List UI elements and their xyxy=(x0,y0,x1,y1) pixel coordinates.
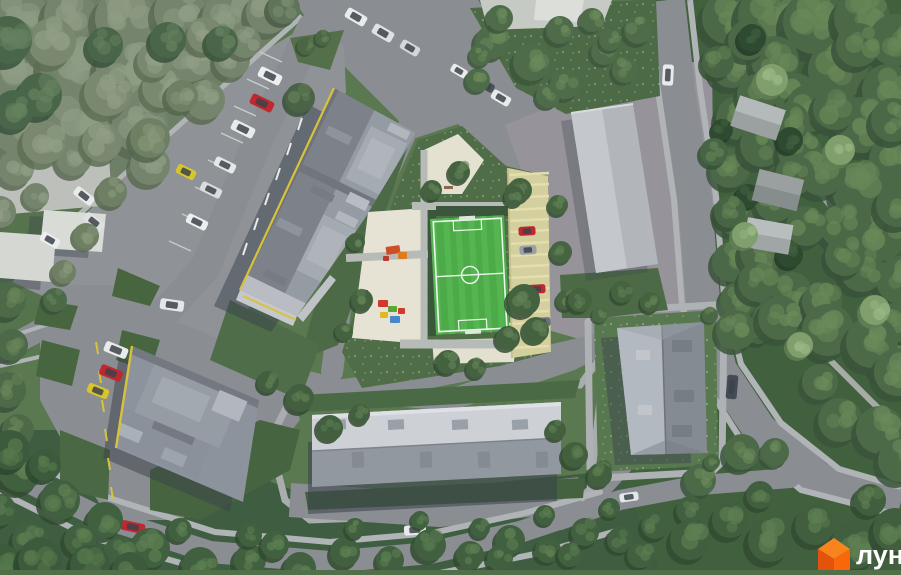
svg-text:лун: лун xyxy=(856,540,901,570)
